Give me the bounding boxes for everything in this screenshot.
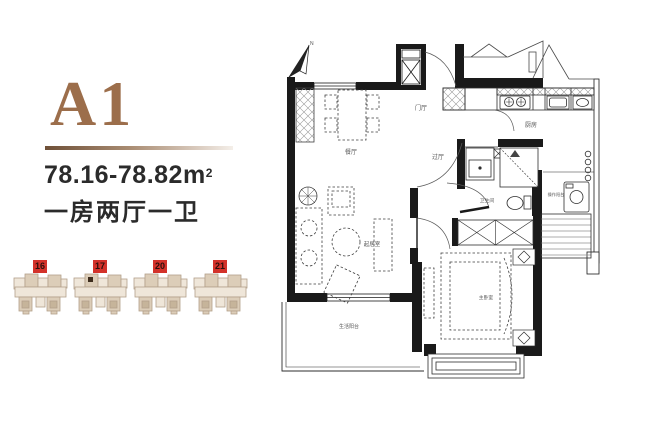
dining-table	[296, 88, 379, 142]
north-arrow-icon: N	[288, 41, 314, 78]
room-label-living: 起居室	[364, 240, 381, 248]
north-label: N	[310, 41, 314, 47]
room-label-hall: 过厅	[432, 153, 444, 161]
service-balcony-fixtures	[541, 151, 594, 258]
nightstands	[513, 249, 535, 346]
elevator-shaft	[401, 49, 421, 85]
wardrobe	[458, 220, 533, 245]
windows	[314, 79, 599, 301]
floor-plan-drawing: N	[0, 0, 660, 440]
room-label-service-balcony: 操作阳台	[548, 191, 565, 198]
kitchen-door-arc	[494, 110, 514, 131]
room-label-bathroom: 卫生间	[480, 197, 495, 204]
room-label-foyer: 门厅	[415, 104, 427, 112]
kitchen-counter	[443, 88, 594, 110]
room-label-master-bedroom: 主卧室	[479, 294, 494, 301]
roof-outline	[463, 41, 597, 79]
room-label-kitchen: 厨房	[525, 121, 537, 129]
bay-window	[428, 354, 524, 378]
room-label-dining: 餐厅	[345, 148, 357, 156]
floorplan-page: A1 78.16-78.82m2 一房两厅一卫 16 17	[0, 0, 660, 440]
bed	[424, 253, 512, 339]
room-label-living-balcony: 生活阳台	[339, 323, 359, 330]
living-balcony-rail	[282, 302, 424, 371]
